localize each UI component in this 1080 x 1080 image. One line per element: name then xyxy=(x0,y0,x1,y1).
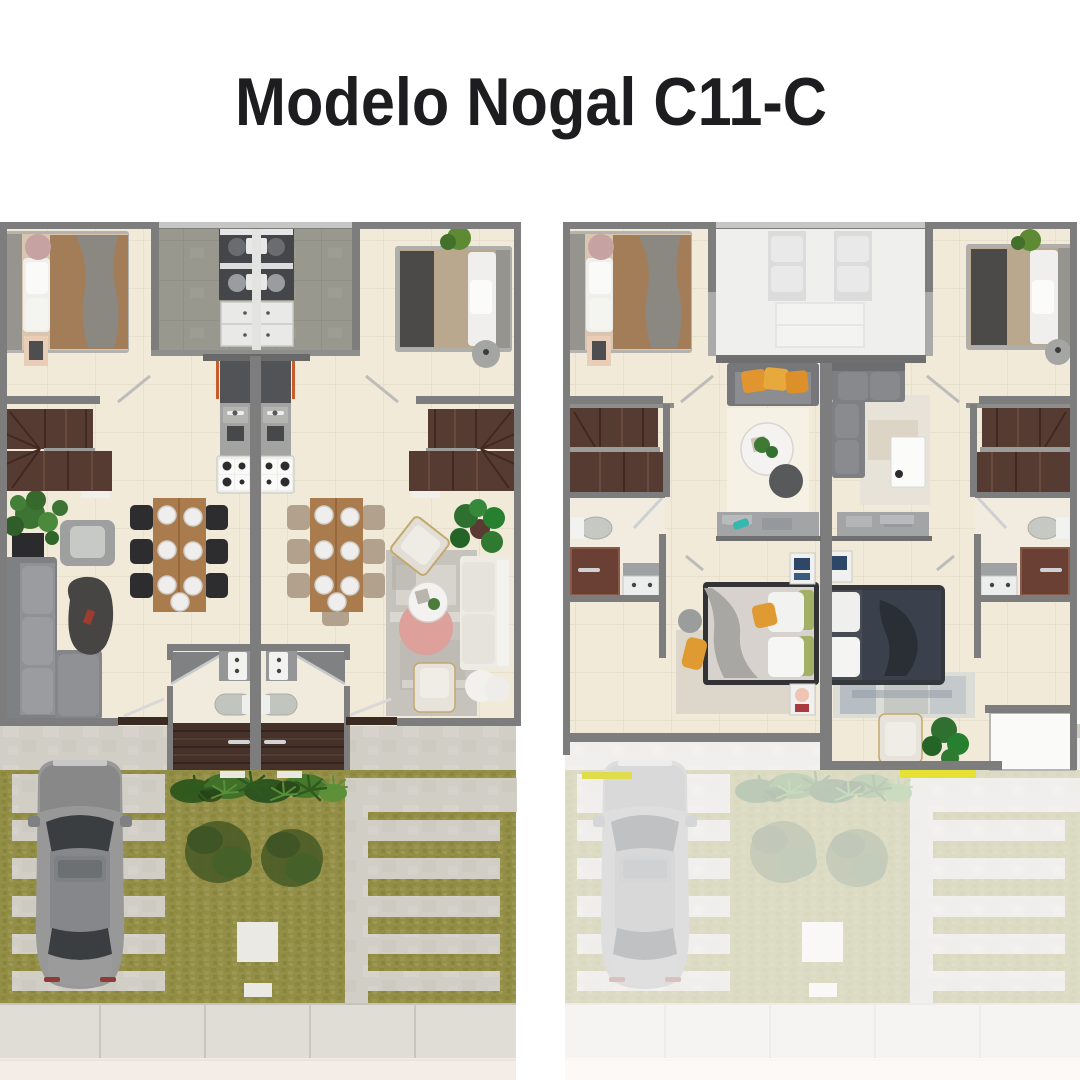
svg-text:Modelo Nogal C11-C: Modelo Nogal C11-C xyxy=(235,64,827,140)
